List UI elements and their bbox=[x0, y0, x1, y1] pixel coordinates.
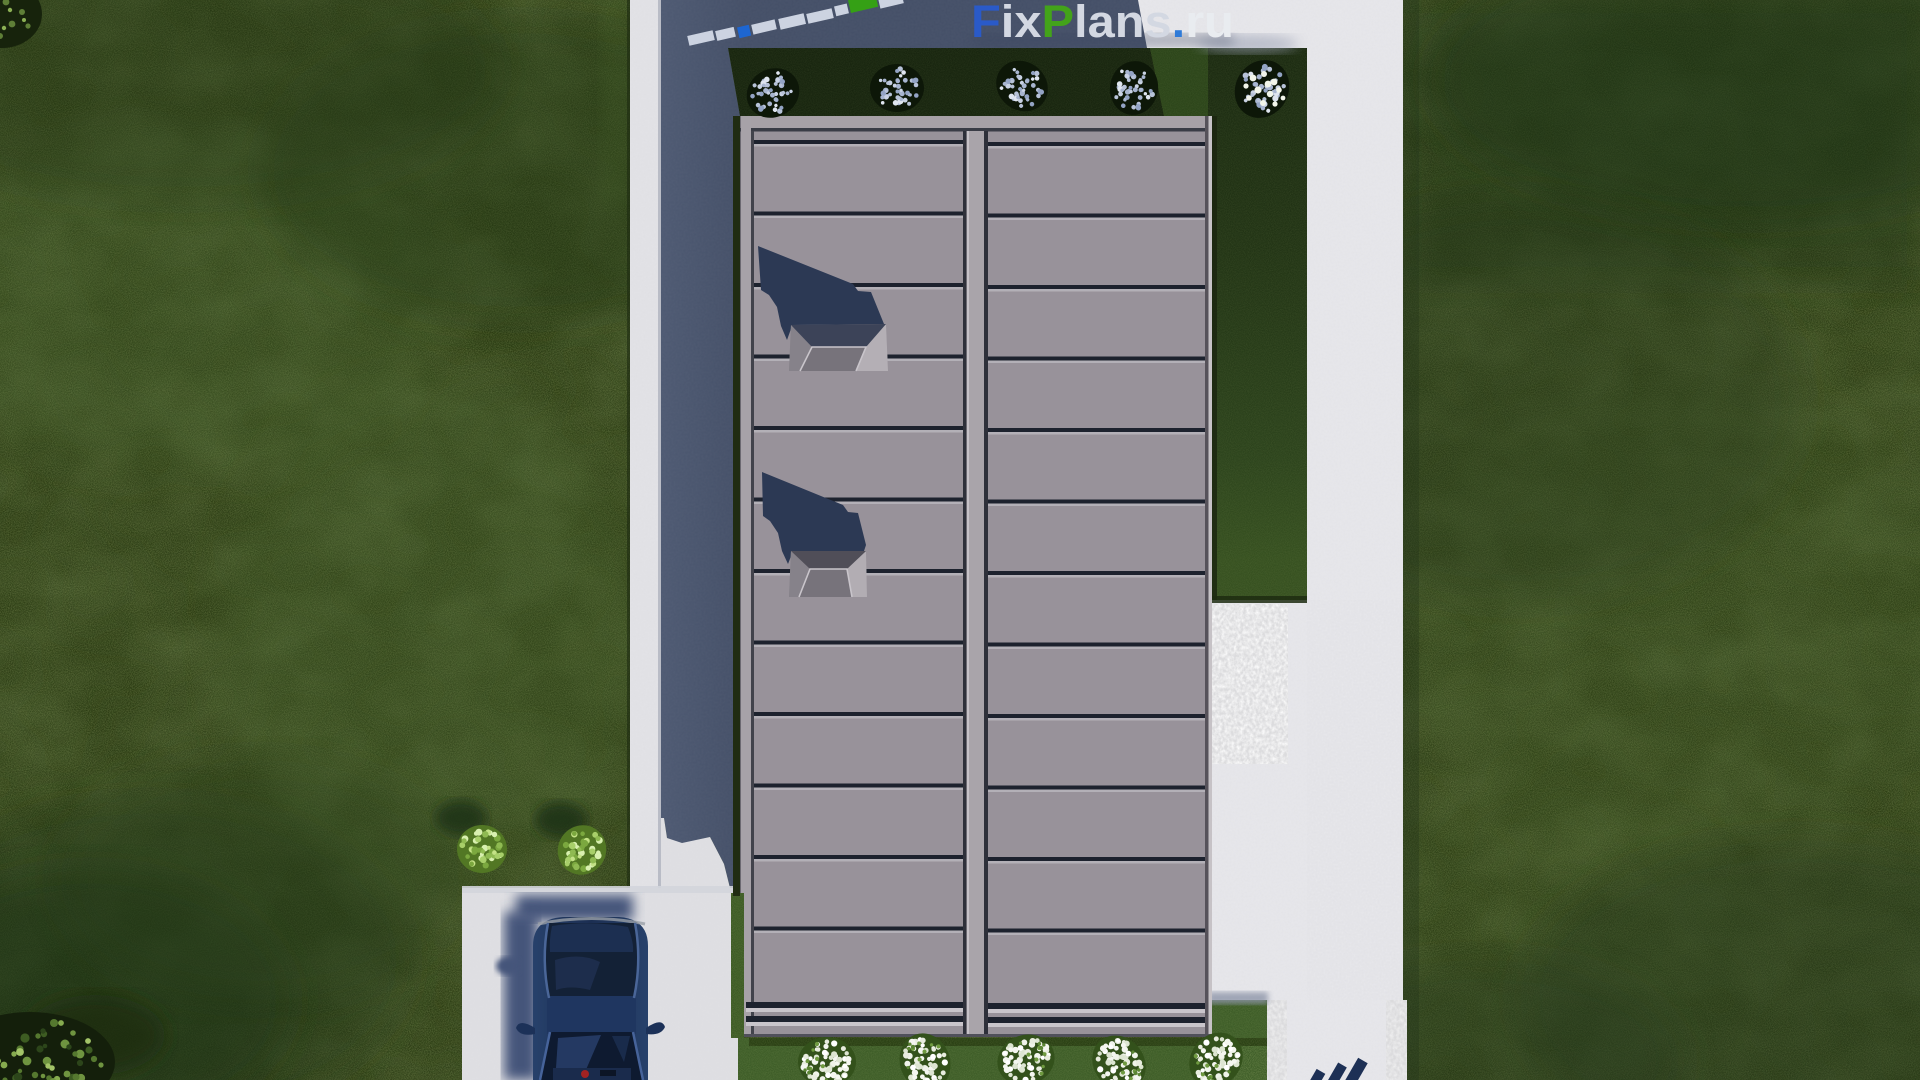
svg-text:FixPlans.ru: FixPlans.ru bbox=[971, 0, 1234, 47]
